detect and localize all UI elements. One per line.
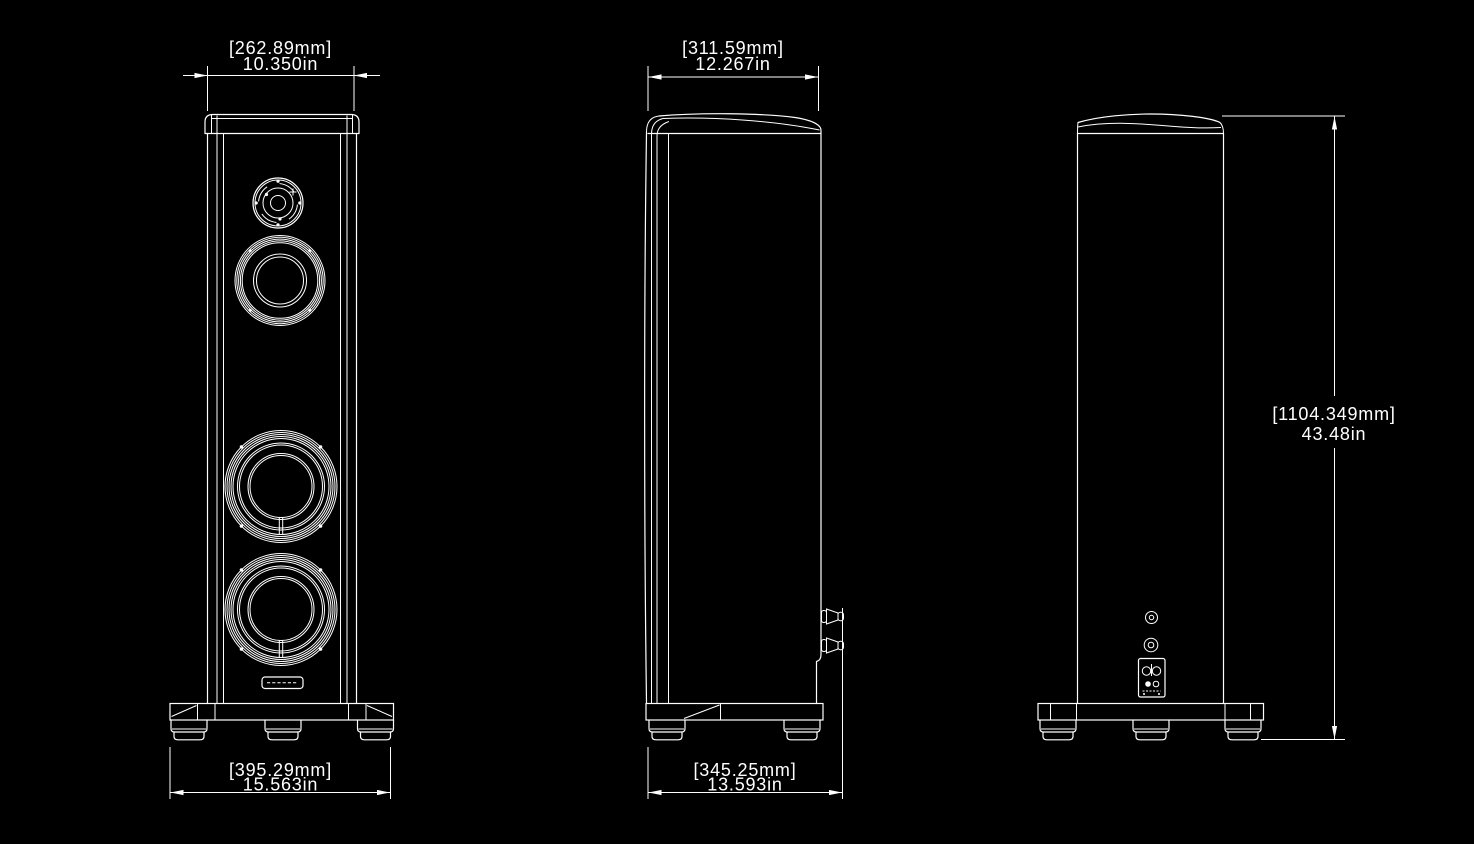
front-feet xyxy=(171,720,394,740)
overall-height-mm-label: [1104.349mm] xyxy=(1272,404,1395,424)
dim-overall-height: [1104.349mm] 43.48in xyxy=(1222,116,1396,740)
foot xyxy=(784,720,820,740)
foot xyxy=(1040,720,1076,740)
dim-top-depth: [311.59mm] 12.267in xyxy=(648,38,819,111)
arrowhead xyxy=(1332,726,1337,739)
back-view: [1104.349mm] 43.48in xyxy=(1038,114,1396,740)
midrange-driver xyxy=(235,236,325,326)
foot xyxy=(1133,720,1169,740)
foot xyxy=(171,720,207,740)
arrowhead xyxy=(829,790,842,795)
base-depth-in-label: 13.593in xyxy=(707,775,782,795)
woofer-lower xyxy=(225,554,337,666)
foot xyxy=(1225,720,1261,740)
arrowhead xyxy=(1332,117,1337,130)
arrowhead xyxy=(354,73,367,78)
foot xyxy=(649,720,685,740)
back-feet xyxy=(1040,720,1261,740)
arrowhead xyxy=(649,74,662,79)
side-top-cap xyxy=(647,114,822,136)
arrowhead xyxy=(377,790,390,795)
binding-post xyxy=(822,609,844,624)
back-cabinet-outline xyxy=(1078,134,1224,704)
side-feet xyxy=(649,720,820,740)
back-top-cap xyxy=(1078,114,1224,134)
dim-base-width: [395.29mm] 15.563in xyxy=(170,747,391,799)
front-base-plinth xyxy=(170,704,394,721)
foot xyxy=(358,720,394,740)
woofer-upper xyxy=(225,431,337,543)
dim-front-width: [262.89mm] 10.350in xyxy=(183,38,380,111)
serial-label xyxy=(1139,659,1166,698)
overall-height-in-label: 43.48in xyxy=(1302,424,1367,444)
front-width-in-label: 10.350in xyxy=(243,54,318,74)
front-top-cap xyxy=(205,115,359,134)
arrowhead xyxy=(649,790,662,795)
base-width-in-label: 15.563in xyxy=(243,775,318,795)
front-view: [262.89mm] 10.350in [395.29mm] 15.563in xyxy=(170,38,394,799)
terminal xyxy=(1144,638,1158,652)
arrowhead xyxy=(805,74,818,79)
back-base-plinth xyxy=(1038,704,1264,721)
top-depth-in-label: 12.267in xyxy=(695,54,770,74)
terminals-back xyxy=(1144,612,1158,652)
binding-posts-side xyxy=(822,609,844,653)
arrowhead xyxy=(171,790,184,795)
foot xyxy=(265,720,301,740)
side-base-plinth xyxy=(646,704,823,721)
arrowhead xyxy=(195,73,208,78)
binding-post xyxy=(822,638,844,653)
terminal xyxy=(1146,612,1158,624)
back-edge xyxy=(817,127,822,704)
brand-badge xyxy=(262,677,303,689)
tweeter xyxy=(253,178,304,229)
speaker-dimension-drawing: [262.89mm] 10.350in [395.29mm] 15.563in xyxy=(0,0,1474,844)
side-cabinet-outline xyxy=(645,127,821,704)
side-view: [311.59mm] 12.267in [345.25mm] 13.593in xyxy=(645,38,844,799)
